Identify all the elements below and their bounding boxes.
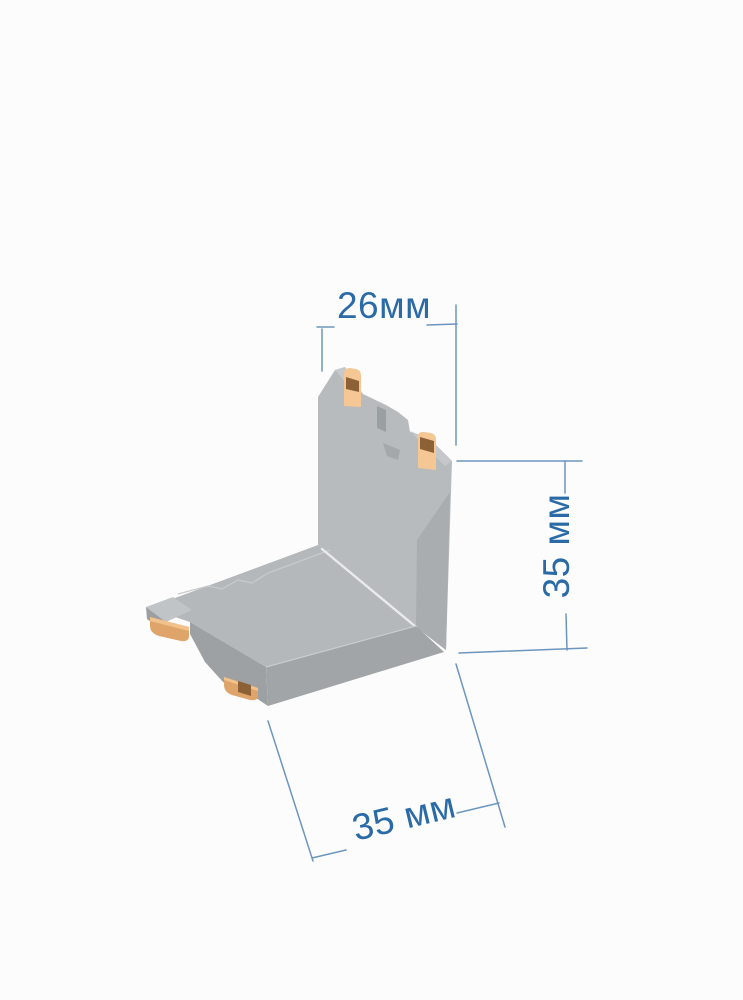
connector-3d-render <box>0 0 743 1000</box>
dimension-label-right-height: 35 мм <box>535 486 579 606</box>
right-dim-tick-bottom <box>459 648 587 653</box>
connector-body <box>0 0 452 706</box>
diagram-canvas: 26мм 35 мм 35 мм <box>0 0 743 1000</box>
bottom-dim-extension-left <box>268 721 313 861</box>
bottom-dim-line-left <box>312 850 346 858</box>
dimension-label-top-width: 26мм <box>324 284 444 328</box>
right-dim-line-lower <box>566 614 567 650</box>
wall-slot-notch <box>377 406 386 432</box>
